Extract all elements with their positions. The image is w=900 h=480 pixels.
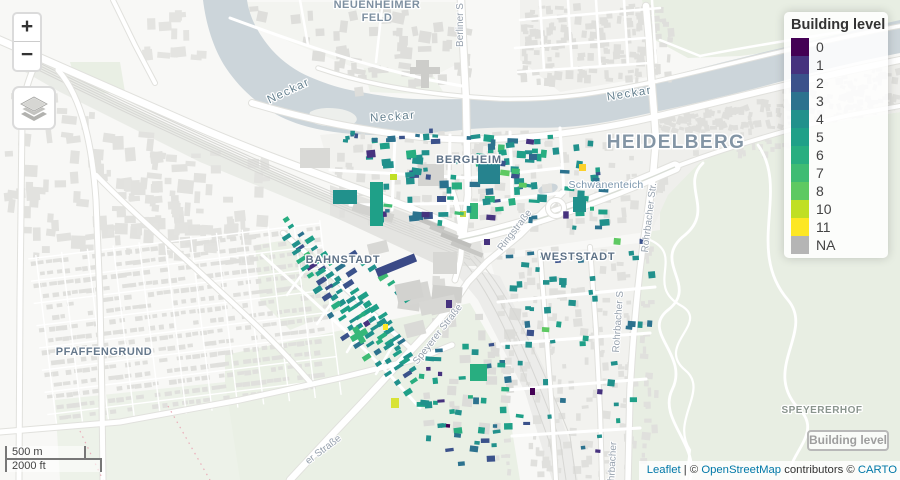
svg-text:WESTSTADT: WESTSTADT	[541, 251, 616, 263]
svg-text:BERGHEIM: BERGHEIM	[436, 154, 502, 166]
svg-text:PFAFFENGRUND: PFAFFENGRUND	[56, 346, 152, 358]
svg-text:FELD: FELD	[362, 12, 393, 24]
svg-text:SPEYERERHOF: SPEYERERHOF	[781, 405, 862, 416]
svg-text:Schwanenteich: Schwanenteich	[568, 179, 643, 191]
svg-text:Berliner S: Berliner S	[455, 3, 466, 47]
svg-text:HEIDELBERG: HEIDELBERG	[607, 132, 746, 153]
svg-text:NEUENHEIMER: NEUENHEIMER	[334, 0, 421, 11]
svg-text:BAHNSTADT: BAHNSTADT	[306, 254, 381, 266]
svg-text:Rohrbacher: Rohrbacher	[606, 441, 620, 480]
